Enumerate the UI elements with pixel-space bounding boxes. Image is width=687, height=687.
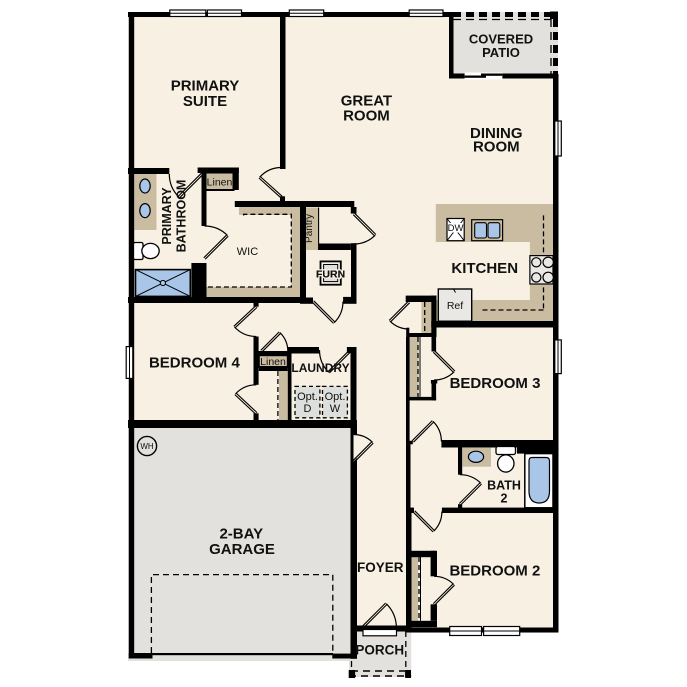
svg-text:BATHROOM: BATHROOM	[175, 180, 189, 253]
svg-text:SUITE: SUITE	[183, 93, 227, 110]
svg-text:GARAGE: GARAGE	[209, 541, 275, 558]
svg-text:Opt.: Opt.	[297, 391, 318, 403]
svg-text:PRIMARY: PRIMARY	[160, 187, 174, 245]
svg-text:FURN: FURN	[316, 269, 345, 281]
svg-text:KITCHEN: KITCHEN	[451, 260, 518, 277]
svg-text:D: D	[304, 403, 312, 415]
svg-text:FOYER: FOYER	[357, 560, 404, 575]
svg-text:BEDROOM 4: BEDROOM 4	[149, 355, 241, 372]
svg-text:2: 2	[501, 492, 508, 506]
svg-text:Opt.: Opt.	[325, 391, 346, 403]
svg-text:BEDROOM 2: BEDROOM 2	[449, 563, 540, 580]
svg-text:PORCH: PORCH	[355, 643, 404, 658]
svg-text:2-BAY: 2-BAY	[219, 526, 263, 543]
svg-text:W: W	[330, 403, 341, 415]
svg-text:Linen: Linen	[260, 356, 286, 368]
svg-text:Pantry: Pantry	[304, 214, 315, 243]
svg-text:Ref: Ref	[447, 300, 463, 312]
svg-text:Linen: Linen	[207, 177, 233, 189]
svg-text:WH: WH	[140, 442, 154, 451]
svg-text:ROOM: ROOM	[473, 138, 520, 155]
svg-text:ROOM: ROOM	[343, 108, 390, 125]
svg-text:DW: DW	[448, 223, 464, 234]
svg-text:PATIO: PATIO	[482, 45, 520, 60]
svg-text:WIC: WIC	[237, 246, 258, 258]
svg-text:BEDROOM 3: BEDROOM 3	[450, 375, 541, 392]
svg-text:LAUNDRY: LAUNDRY	[291, 361, 349, 375]
svg-text:BATH: BATH	[487, 479, 521, 493]
